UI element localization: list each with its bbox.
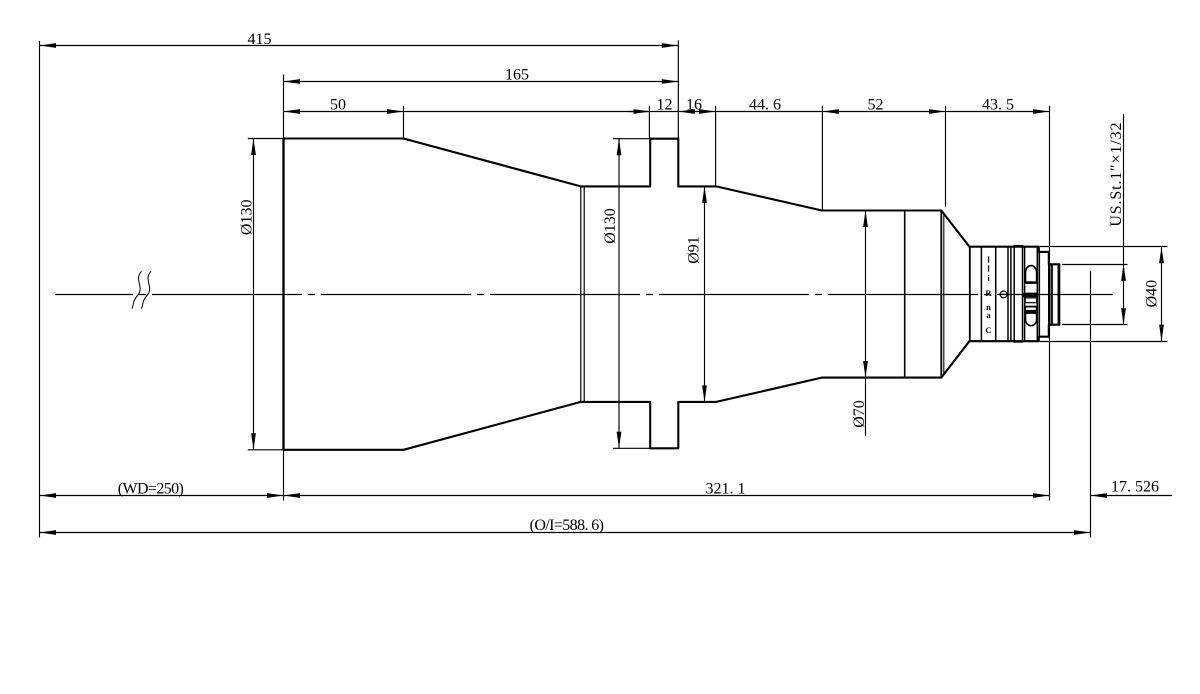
svg-text:Ø130: Ø130 <box>238 200 255 236</box>
svg-text:(WD=250): (WD=250) <box>118 480 184 497</box>
svg-text:Ø70: Ø70 <box>851 400 868 428</box>
svg-text:17. 526: 17. 526 <box>1111 479 1159 496</box>
svg-text:US.St.1″×1/32: US.St.1″×1/32 <box>1108 122 1125 227</box>
svg-text:52: 52 <box>868 97 884 114</box>
svg-text:50: 50 <box>330 97 346 114</box>
svg-text:16: 16 <box>686 97 702 114</box>
svg-text:Ø130: Ø130 <box>602 208 619 244</box>
svg-text:43. 5: 43. 5 <box>982 97 1014 114</box>
svg-text:R: R <box>985 288 992 298</box>
svg-text:12: 12 <box>657 97 673 114</box>
svg-text:415: 415 <box>248 31 272 48</box>
svg-text:44. 6: 44. 6 <box>749 97 781 114</box>
svg-text:Ø91: Ø91 <box>685 236 702 264</box>
svg-text:C: C <box>985 325 991 335</box>
svg-text:(O/I=588. 6): (O/I=588. 6) <box>530 517 604 534</box>
svg-text:Ø40: Ø40 <box>1143 280 1160 308</box>
svg-text:165: 165 <box>505 67 529 84</box>
svg-text:321. 1: 321. 1 <box>706 480 746 497</box>
